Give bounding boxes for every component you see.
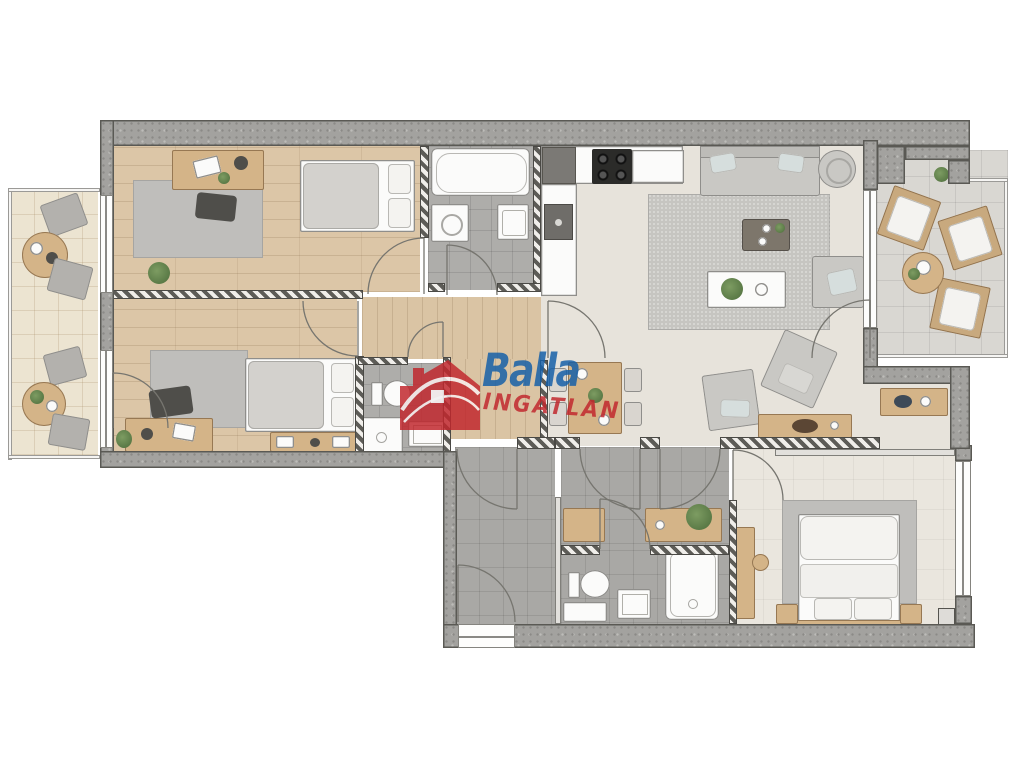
wall-niche-right: [950, 366, 970, 449]
double-bed: [798, 514, 900, 626]
living-room-rug: [648, 194, 830, 330]
wall-entrance-corridor: [555, 497, 561, 624]
nightstand: [776, 604, 798, 624]
bathtub: [431, 148, 530, 196]
pillow: [331, 363, 354, 393]
white-cabinet: [632, 150, 684, 183]
table-plant: [30, 390, 44, 404]
pillow: [388, 198, 411, 228]
kitchen-sink: [544, 204, 573, 240]
sofa-pillow: [777, 152, 805, 173]
entry-door: [458, 624, 515, 648]
wall-dining-corridor-b: [640, 437, 660, 449]
floor-plan: Balla INGATLAN: [0, 0, 1024, 768]
terrace-table: [902, 252, 944, 294]
cushion: [826, 267, 858, 296]
console: [880, 388, 948, 416]
table-plant: [721, 278, 743, 300]
pillow: [814, 598, 852, 620]
toilet: [568, 572, 580, 598]
balcony-railing-left: [8, 188, 12, 460]
wall-living-right-b: [863, 328, 878, 368]
dark-counter: [542, 147, 576, 184]
terrace-railing-right: [1004, 178, 1008, 358]
wall-lower-left: [443, 451, 457, 648]
terrace-plant: [934, 167, 949, 182]
armchair: [812, 256, 864, 308]
bowl: [310, 438, 320, 447]
wall-bedrooms-divider: [113, 290, 363, 299]
coffee-table: [742, 219, 790, 251]
armchair: [701, 369, 760, 432]
desk-lamp: [234, 156, 248, 170]
nightstand: [900, 604, 922, 624]
cup: [46, 400, 58, 412]
duvet-fold: [800, 564, 898, 598]
sideboard: [758, 414, 852, 438]
single-bed: [245, 358, 359, 432]
cushion: [720, 399, 751, 418]
stool: [752, 554, 769, 571]
duvet: [248, 361, 324, 429]
cup: [758, 237, 767, 246]
console: [563, 508, 605, 542]
wall-upper-bottom: [100, 451, 457, 468]
washing-machine: [431, 204, 469, 242]
wall-niche-top: [863, 366, 958, 384]
office-chair: [195, 192, 237, 222]
bathroom-cabinet: [563, 602, 607, 622]
decor: [920, 396, 931, 407]
plant: [148, 262, 170, 284]
cushion: [885, 195, 932, 243]
table-plant: [775, 223, 785, 233]
decor: [894, 395, 912, 408]
wall-bedroom3-right-b: [955, 596, 972, 624]
desk: [125, 418, 213, 452]
decor: [830, 421, 839, 430]
pillow: [331, 397, 354, 427]
wall-hall-entrance: [517, 437, 555, 449]
bowl: [792, 419, 818, 433]
wall-living-right-a: [863, 140, 878, 190]
wall-bath1-kitchen: [533, 146, 541, 290]
shower-drain: [376, 432, 387, 443]
bathroom-sink: [497, 204, 529, 240]
wall-bottom: [443, 624, 975, 648]
wall-top: [100, 120, 970, 146]
sofa-pillow: [709, 152, 738, 174]
white-side-table: [707, 271, 786, 308]
outlet-symbol: [938, 608, 955, 625]
sink-basin: [502, 210, 526, 236]
cup: [30, 242, 43, 255]
pouf-swirl: [826, 158, 852, 184]
balcony-railing-top: [8, 188, 100, 192]
watermark-logo: Balla INGATLAN: [398, 352, 634, 436]
wall-bedroom1-bath: [420, 146, 429, 238]
wall-corridor-bedroom3: [729, 500, 737, 624]
bedroom-1-rug: [133, 180, 263, 258]
balcony-railing-bottom: [8, 455, 100, 459]
wall-terrace-step-a: [877, 146, 905, 184]
wall-terrace-step-c: [948, 160, 970, 184]
bed: [300, 160, 415, 232]
office-chair: [148, 385, 193, 419]
sofa: [700, 146, 820, 196]
bathroom-sink: [617, 589, 651, 619]
large-pillow: [800, 516, 898, 560]
wall-bath2-corridor-a: [561, 545, 600, 555]
paper: [172, 422, 196, 442]
shower: [665, 547, 719, 620]
books: [332, 436, 350, 448]
pillow: [854, 598, 892, 620]
shower-drain: [688, 599, 698, 609]
window-bedroom3: [955, 461, 971, 596]
plate: [755, 283, 768, 296]
wall-dining-corridor-c: [720, 437, 880, 449]
toilet-bowl: [580, 570, 610, 598]
wall-bedroom2-hall: [355, 356, 364, 453]
table-plant: [908, 268, 920, 280]
desk: [172, 150, 264, 190]
window-bedroom2: [100, 350, 113, 448]
cushion: [777, 362, 815, 395]
toilet: [371, 382, 383, 406]
decor: [655, 520, 665, 530]
watermark-subtitle-text: INGATLAN: [482, 389, 621, 425]
cushion: [947, 215, 993, 262]
round-pouf: [818, 150, 856, 188]
bathtub-basin: [436, 153, 527, 193]
washer-door: [441, 214, 463, 236]
wall-bath1-hall-a: [428, 283, 445, 292]
kitchen-counter-left: [541, 184, 577, 296]
desk-vase: [141, 428, 153, 440]
books: [276, 436, 294, 448]
terrace-railing-bottom: [877, 354, 1008, 358]
window-bedroom1: [100, 195, 113, 293]
plant: [686, 504, 712, 530]
house-icon: [398, 356, 482, 432]
plant: [116, 430, 132, 448]
cooktop: [592, 149, 632, 184]
cup: [762, 224, 771, 233]
duvet: [303, 163, 379, 229]
cushion: [938, 287, 981, 332]
wall-bath2-corridor-b: [650, 545, 729, 555]
faucet: [555, 219, 562, 226]
wall-bath1-hall-b: [497, 283, 541, 292]
balcony-chair: [48, 413, 91, 451]
terrace-door-window: [863, 190, 877, 328]
wall-terrace-step-b: [905, 146, 970, 160]
wall-dining-corridor-a: [555, 437, 580, 449]
pillow: [388, 164, 411, 194]
bookshelf: [270, 432, 358, 452]
entrance-floor: [455, 447, 555, 624]
sink-basin: [622, 594, 648, 615]
wall-bedroom3-top: [775, 449, 955, 456]
terrace-railing-top: [966, 178, 1008, 182]
desk-plant: [218, 172, 230, 184]
